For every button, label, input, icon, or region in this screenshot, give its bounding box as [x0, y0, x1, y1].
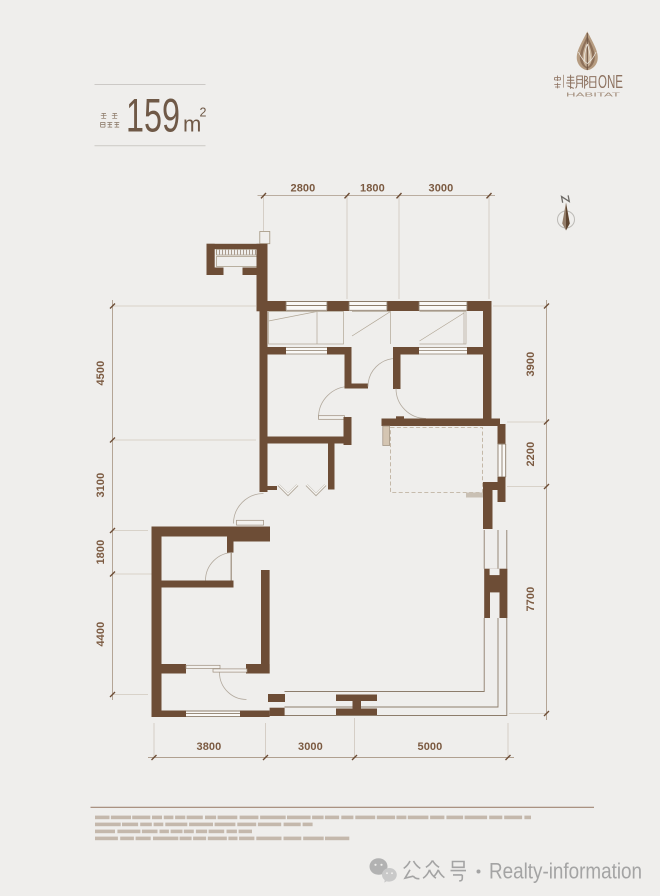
svg-text:7700: 7700: [525, 587, 537, 612]
svg-text:1800: 1800: [360, 183, 385, 195]
svg-text:Realty-information: Realty-information: [489, 859, 642, 884]
svg-text:HABITAT: HABITAT: [566, 93, 622, 99]
svg-text:3900: 3900: [525, 352, 537, 377]
svg-text:159: 159: [126, 89, 180, 142]
svg-text:3800: 3800: [197, 741, 222, 753]
svg-text:4400: 4400: [95, 622, 107, 647]
svg-text:4500: 4500: [95, 361, 107, 386]
svg-text:ONE: ONE: [598, 71, 623, 92]
svg-text:5000: 5000: [418, 741, 443, 753]
svg-text:3000: 3000: [298, 741, 323, 753]
svg-text:2: 2: [200, 106, 207, 120]
svg-text:3000: 3000: [429, 183, 454, 195]
svg-text:3100: 3100: [95, 473, 107, 498]
svg-text:1800: 1800: [95, 540, 107, 565]
svg-text:2800: 2800: [291, 183, 316, 195]
svg-text:2200: 2200: [525, 442, 537, 467]
